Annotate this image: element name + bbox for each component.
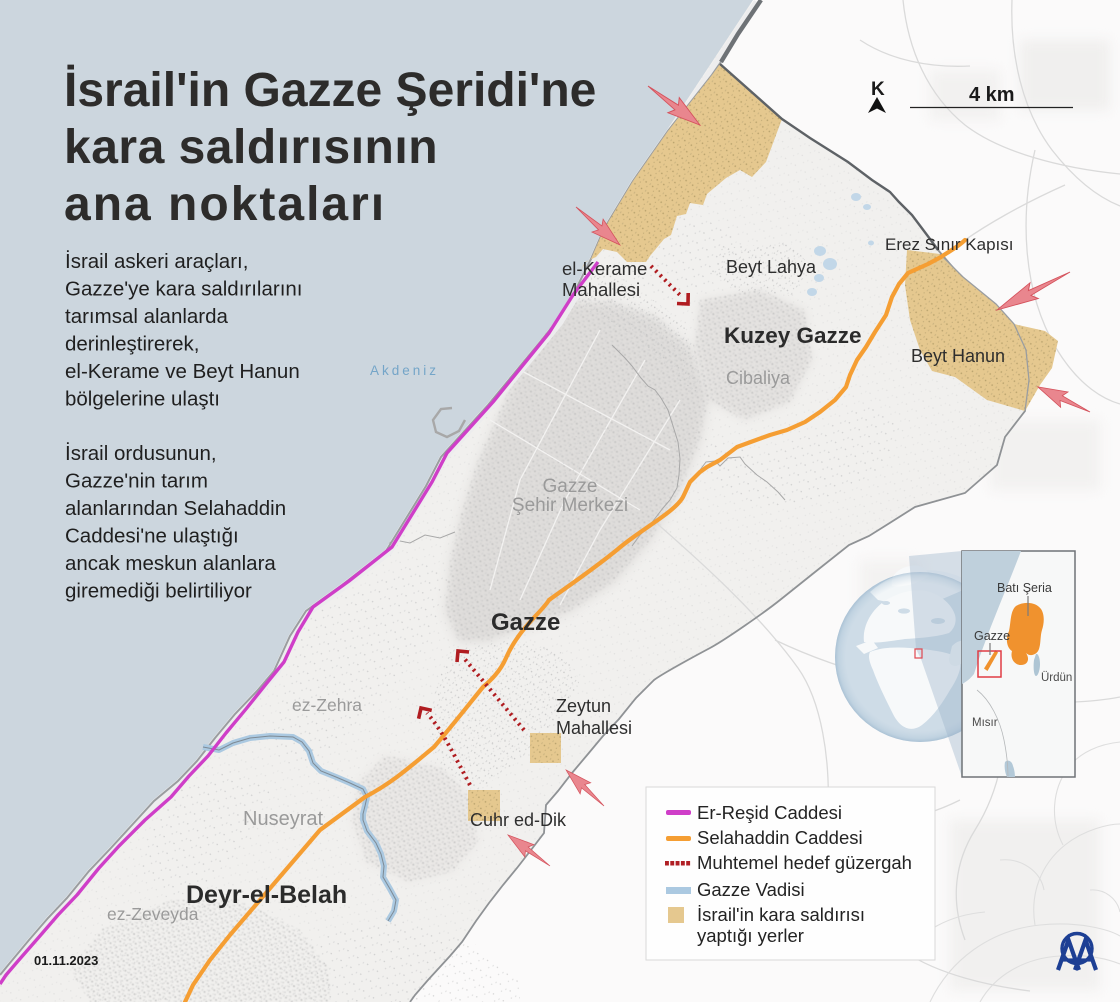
svg-text:01.11.2023: 01.11.2023 <box>34 953 98 968</box>
svg-text:bölgelerine ulaştı: bölgelerine ulaştı <box>65 388 220 411</box>
svg-text:ancak meskun alanlara: ancak meskun alanlara <box>65 552 276 575</box>
svg-text:Muhtemel hedef güzergah: Muhtemel hedef güzergah <box>697 852 912 873</box>
svg-text:Mahallesi: Mahallesi <box>562 279 640 300</box>
svg-text:Nuseyrat: Nuseyrat <box>243 808 323 830</box>
svg-text:Selahaddin Caddesi: Selahaddin Caddesi <box>697 827 863 848</box>
svg-text:İsrail askeri araçları,: İsrail askeri araçları, <box>65 250 248 273</box>
svg-text:Gazze'ye kara saldırılarını: Gazze'ye kara saldırılarını <box>65 278 302 301</box>
svg-text:Gazze: Gazze <box>974 629 1010 643</box>
svg-text:İsrail'in Gazze Şeridi'ne: İsrail'in Gazze Şeridi'ne <box>64 64 596 117</box>
svg-text:Gazze: Gazze <box>543 476 598 497</box>
svg-text:Beyt Hanun: Beyt Hanun <box>911 346 1005 366</box>
svg-text:Kuzey Gazze: Kuzey Gazze <box>724 323 862 348</box>
svg-text:İsrail ordusunun,: İsrail ordusunun, <box>65 442 217 465</box>
svg-text:tarımsal alanlarda: tarımsal alanlarda <box>65 305 229 328</box>
svg-text:el-Kerame ve Beyt Hanun: el-Kerame ve Beyt Hanun <box>65 360 300 383</box>
svg-text:İsrail'in kara saldırısı: İsrail'in kara saldırısı <box>697 904 865 925</box>
svg-text:Mahallesi: Mahallesi <box>556 718 632 738</box>
svg-text:giremediği belirtiliyor: giremediği belirtiliyor <box>65 580 252 603</box>
svg-text:K: K <box>871 79 885 100</box>
svg-text:Cuhr ed-Dik: Cuhr ed-Dik <box>470 810 567 830</box>
svg-text:yaptığı yerler: yaptığı yerler <box>697 925 804 946</box>
svg-text:alanlarından Selahaddin: alanlarından Selahaddin <box>65 497 286 520</box>
svg-text:Gazze'nin tarım: Gazze'nin tarım <box>65 470 208 493</box>
svg-text:ez-Zeveyda: ez-Zeveyda <box>107 904 199 924</box>
svg-text:Zeytun: Zeytun <box>556 696 611 716</box>
svg-text:Er-Reşid Caddesi: Er-Reşid Caddesi <box>697 802 842 823</box>
svg-text:Şehir Merkezi: Şehir Merkezi <box>512 495 628 516</box>
svg-text:Mısır: Mısır <box>972 717 998 729</box>
svg-text:el-Kerame: el-Kerame <box>562 258 647 279</box>
svg-text:Beyt Lahya: Beyt Lahya <box>726 257 817 277</box>
svg-text:Akdeniz: Akdeniz <box>370 363 439 378</box>
svg-text:Gazze: Gazze <box>491 609 560 636</box>
svg-text:Batı Şeria: Batı Şeria <box>997 581 1052 595</box>
svg-text:derinleştirerek,: derinleştirerek, <box>65 333 199 356</box>
svg-text:ana noktaları: ana noktaları <box>64 178 386 231</box>
svg-text:Caddesi'ne ulaştığı: Caddesi'ne ulaştığı <box>65 525 239 548</box>
svg-text:Cibaliya: Cibaliya <box>726 368 791 388</box>
svg-text:kara saldırısının: kara saldırısının <box>64 121 438 174</box>
svg-text:Erez Sınır Kapısı: Erez Sınır Kapısı <box>885 235 1014 254</box>
svg-text:Ürdün: Ürdün <box>1041 672 1072 684</box>
svg-text:Deyr-el-Belah: Deyr-el-Belah <box>186 881 347 909</box>
svg-text:ez-Zehra: ez-Zehra <box>292 695 362 715</box>
svg-text:4 km: 4 km <box>969 84 1015 106</box>
svg-text:Gazze Vadisi: Gazze Vadisi <box>697 879 805 900</box>
